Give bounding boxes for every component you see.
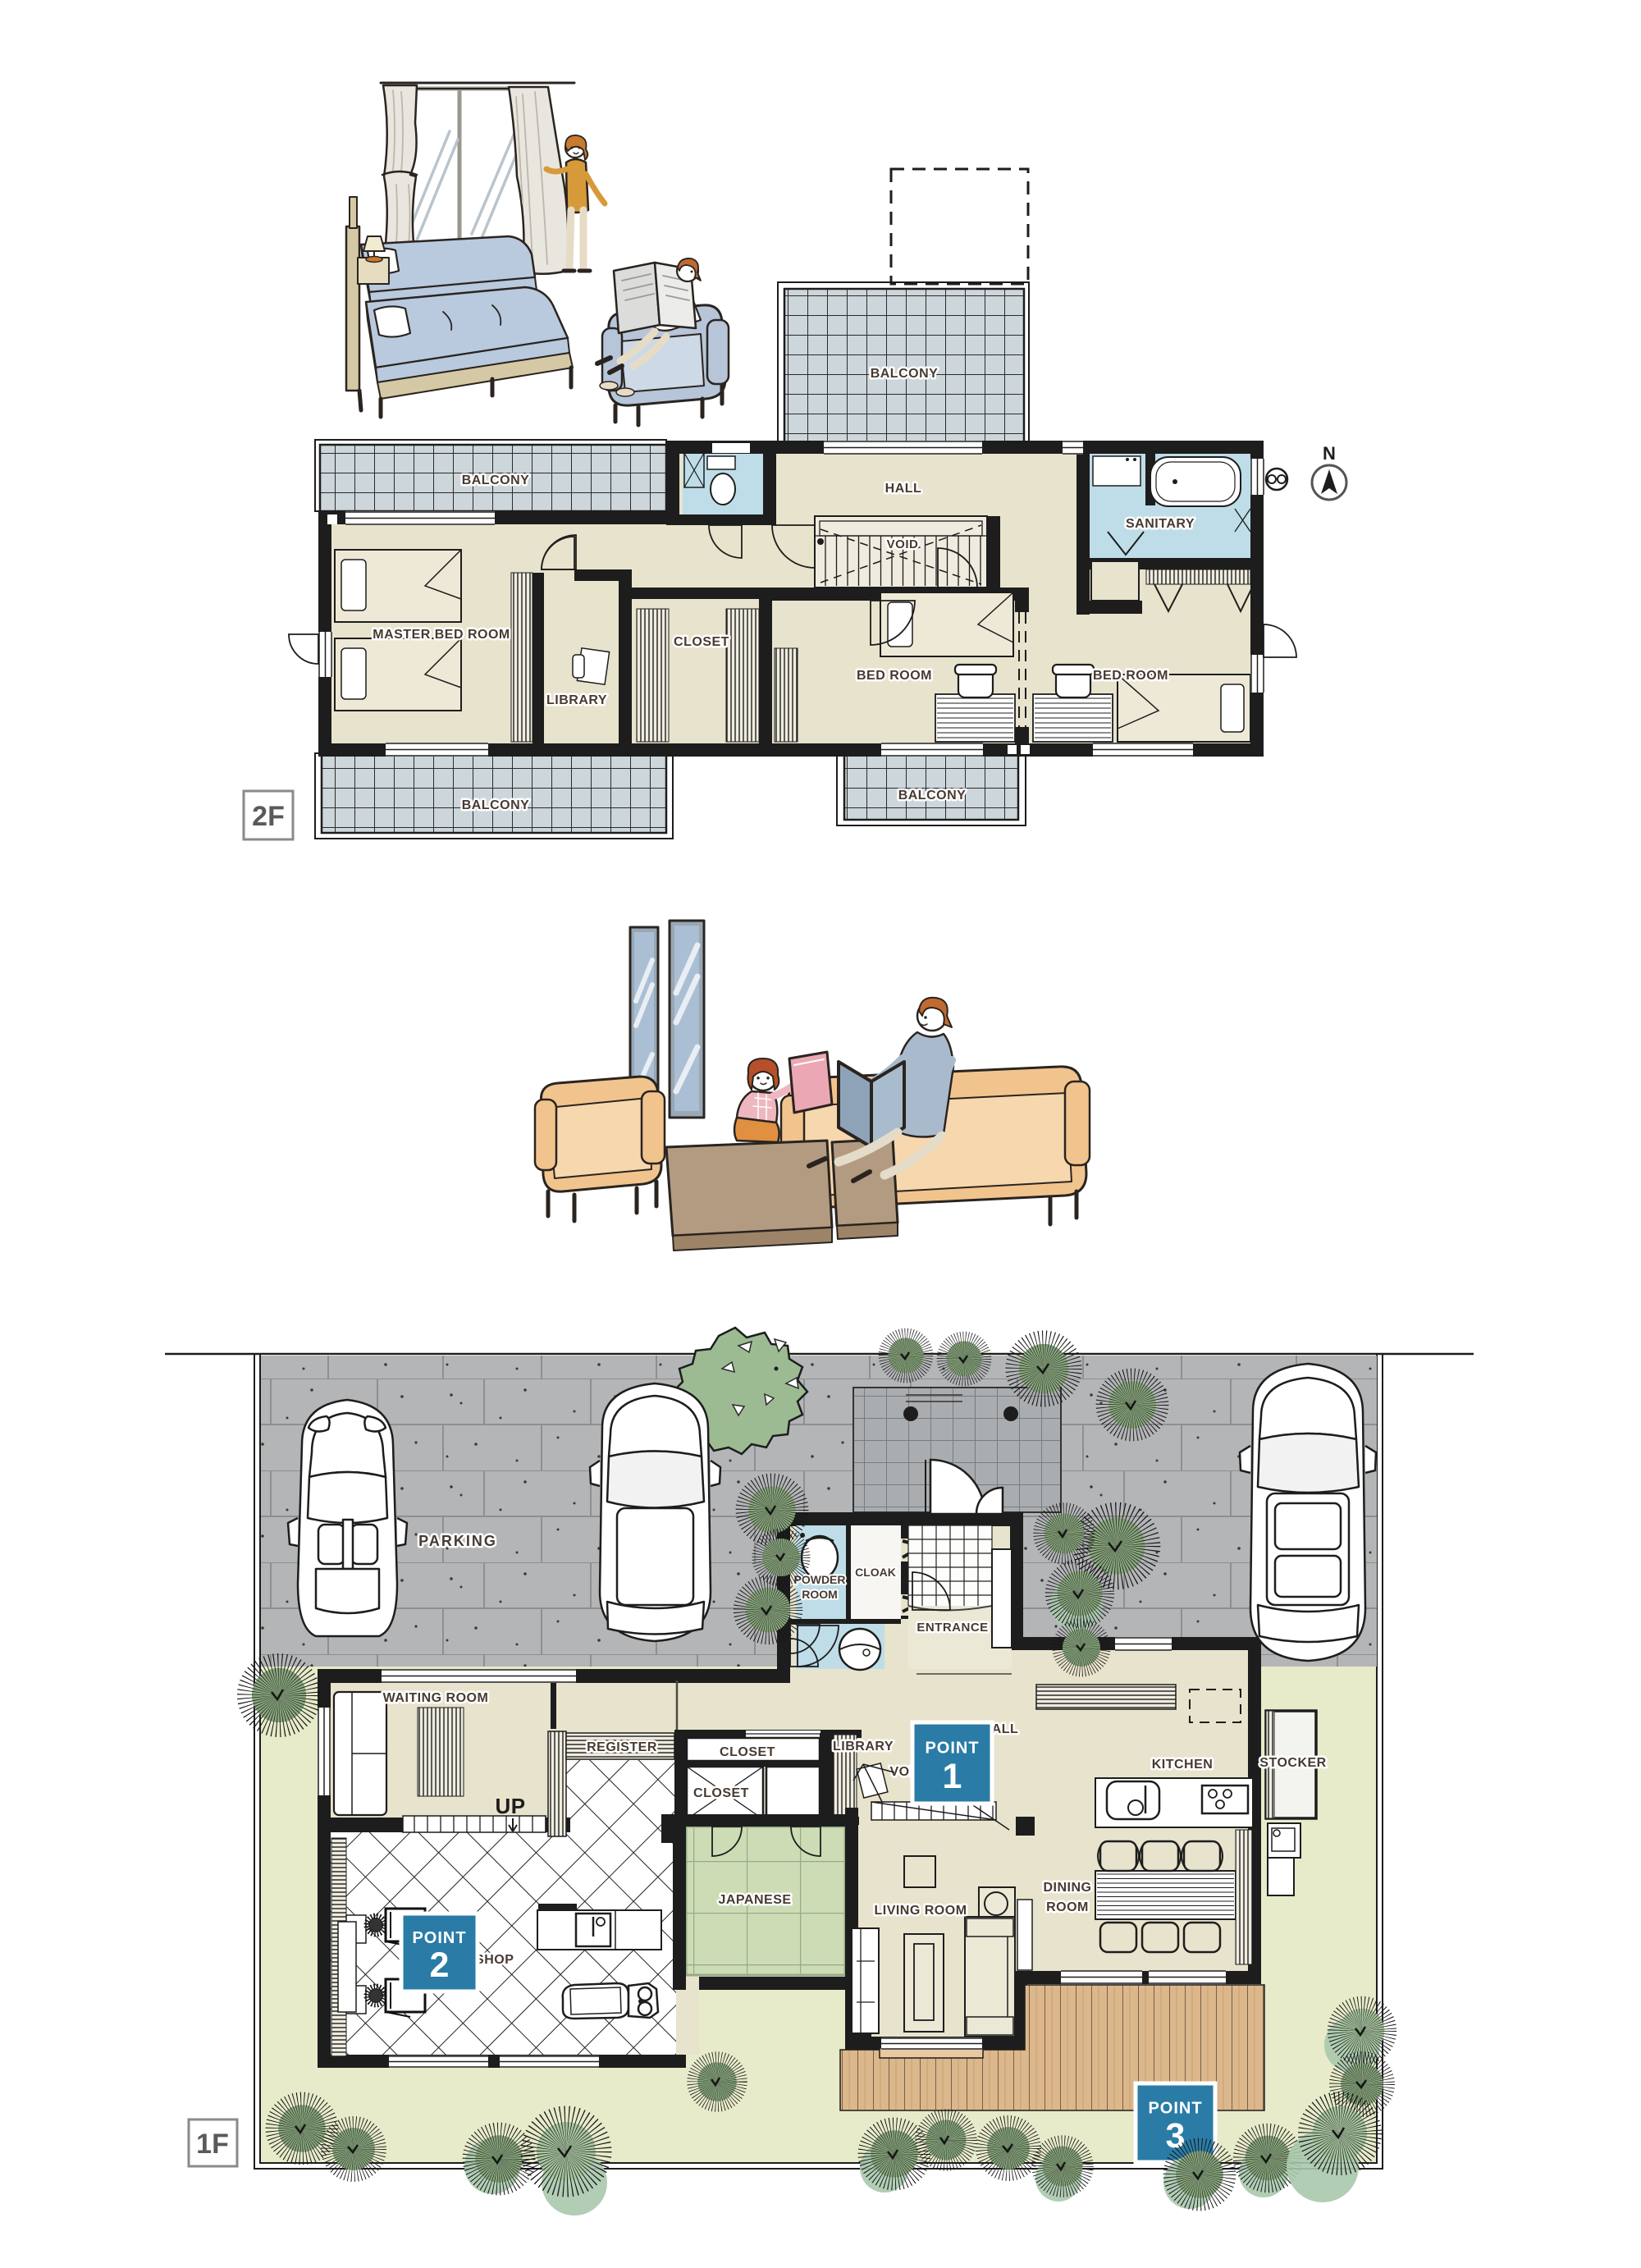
svg-text:BALCONY: BALCONY: [898, 789, 967, 802]
svg-text:N: N: [1323, 443, 1336, 464]
svg-text:ROOM: ROOM: [802, 1588, 838, 1601]
svg-text:WAITING ROOM: WAITING ROOM: [383, 1691, 489, 1705]
svg-text:POINT: POINT: [925, 1740, 979, 1758]
svg-text:CLOAK: CLOAK: [855, 1566, 896, 1579]
svg-text:UP: UP: [495, 1794, 525, 1818]
svg-text:DINING: DINING: [1044, 1881, 1092, 1895]
svg-text:CLOSET: CLOSET: [674, 635, 729, 649]
svg-text:BALCONY: BALCONY: [462, 473, 530, 487]
svg-text:LIBRARY: LIBRARY: [833, 1740, 894, 1754]
svg-text:SANITARY: SANITARY: [1126, 517, 1195, 531]
svg-text:VOID: VOID: [887, 537, 919, 551]
svg-text:1: 1: [943, 1757, 962, 1796]
svg-text:ENTRANCE: ENTRANCE: [916, 1621, 988, 1635]
svg-text:POINT: POINT: [1148, 2099, 1202, 2117]
svg-text:BALCONY: BALCONY: [462, 798, 530, 812]
svg-text:MASTER BED ROOM: MASTER BED ROOM: [373, 628, 510, 642]
svg-text:HALL: HALL: [885, 482, 922, 496]
svg-text:CLOSET: CLOSET: [720, 1745, 775, 1759]
svg-text:BED ROOM: BED ROOM: [1093, 669, 1168, 683]
svg-text:CLOSET: CLOSET: [693, 1786, 749, 1800]
svg-text:PARKING: PARKING: [418, 1533, 497, 1549]
svg-text:LIVING ROOM: LIVING ROOM: [874, 1904, 967, 1918]
svg-text:JAPANESE: JAPANESE: [718, 1893, 791, 1907]
svg-text:2: 2: [430, 1946, 450, 1985]
svg-text:BED ROOM: BED ROOM: [857, 669, 932, 683]
svg-text:BALCONY: BALCONY: [871, 367, 939, 381]
svg-text:STOCKER: STOCKER: [1259, 1756, 1326, 1770]
svg-text:LIBRARY: LIBRARY: [546, 693, 607, 707]
svg-text:REGISTER: REGISTER: [587, 1740, 657, 1754]
svg-text:KITCHEN: KITCHEN: [1152, 1758, 1214, 1772]
svg-text:ROOM: ROOM: [1046, 1900, 1089, 1914]
svg-text:POINT: POINT: [412, 1929, 466, 1947]
svg-text:1F: 1F: [196, 2129, 229, 2160]
svg-text:2F: 2F: [252, 801, 285, 832]
